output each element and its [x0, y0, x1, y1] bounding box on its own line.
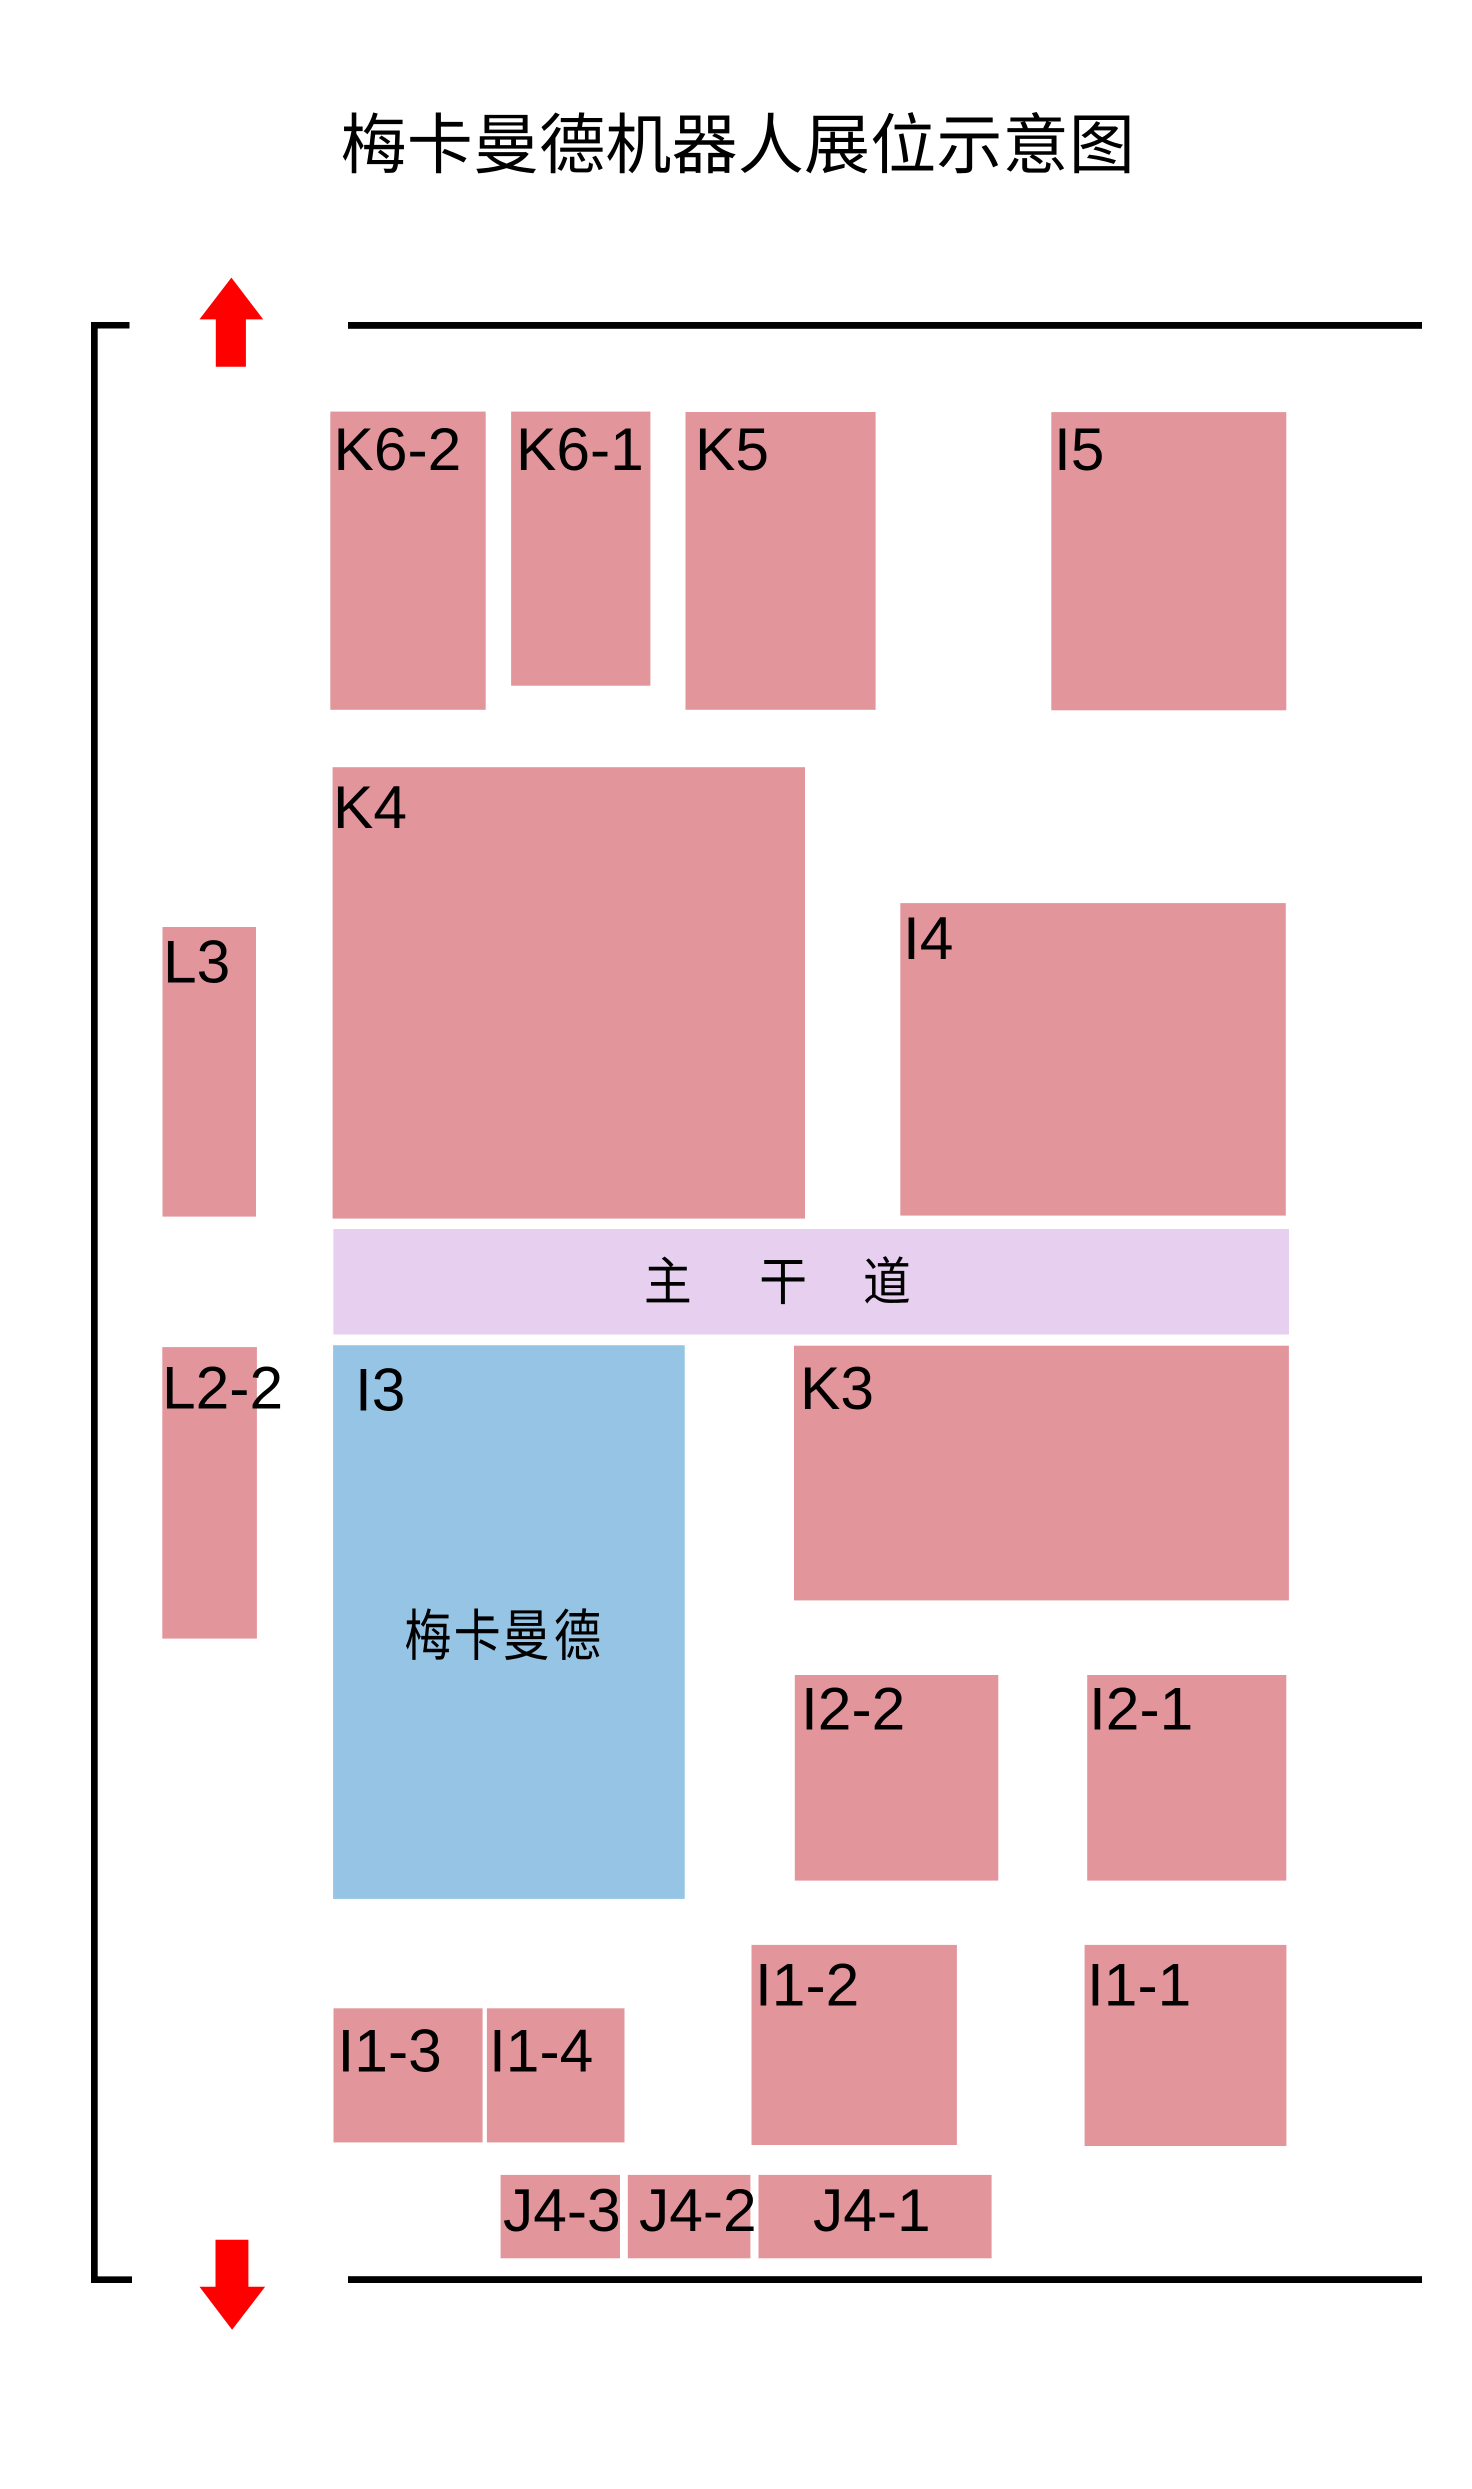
svg-text:K3: K3	[800, 1354, 874, 1422]
svg-text:I2-1: I2-1	[1089, 1675, 1193, 1743]
svg-text:J4-2: J4-2	[639, 2176, 757, 2244]
svg-text:J4-1: J4-1	[813, 2176, 931, 2244]
svg-text:K5: K5	[695, 415, 769, 483]
svg-text:K6-1: K6-1	[516, 415, 644, 483]
svg-text:I1-1: I1-1	[1087, 1951, 1191, 2019]
svg-text:I1-4: I1-4	[489, 2016, 593, 2084]
svg-text:I3: I3	[355, 1355, 405, 1423]
svg-text:I1-2: I1-2	[755, 1951, 859, 2019]
svg-text:K6-2: K6-2	[334, 415, 462, 483]
svg-text:J4-3: J4-3	[503, 2176, 621, 2244]
svg-text:I2-2: I2-2	[801, 1675, 905, 1743]
svg-text:I5: I5	[1054, 415, 1104, 483]
svg-text:L3: L3	[163, 928, 230, 996]
svg-text:I4: I4	[903, 904, 953, 972]
svg-text:L2-2: L2-2	[162, 1354, 283, 1422]
svg-text:K4: K4	[333, 773, 407, 841]
svg-text:I1-3: I1-3	[338, 2016, 442, 2084]
